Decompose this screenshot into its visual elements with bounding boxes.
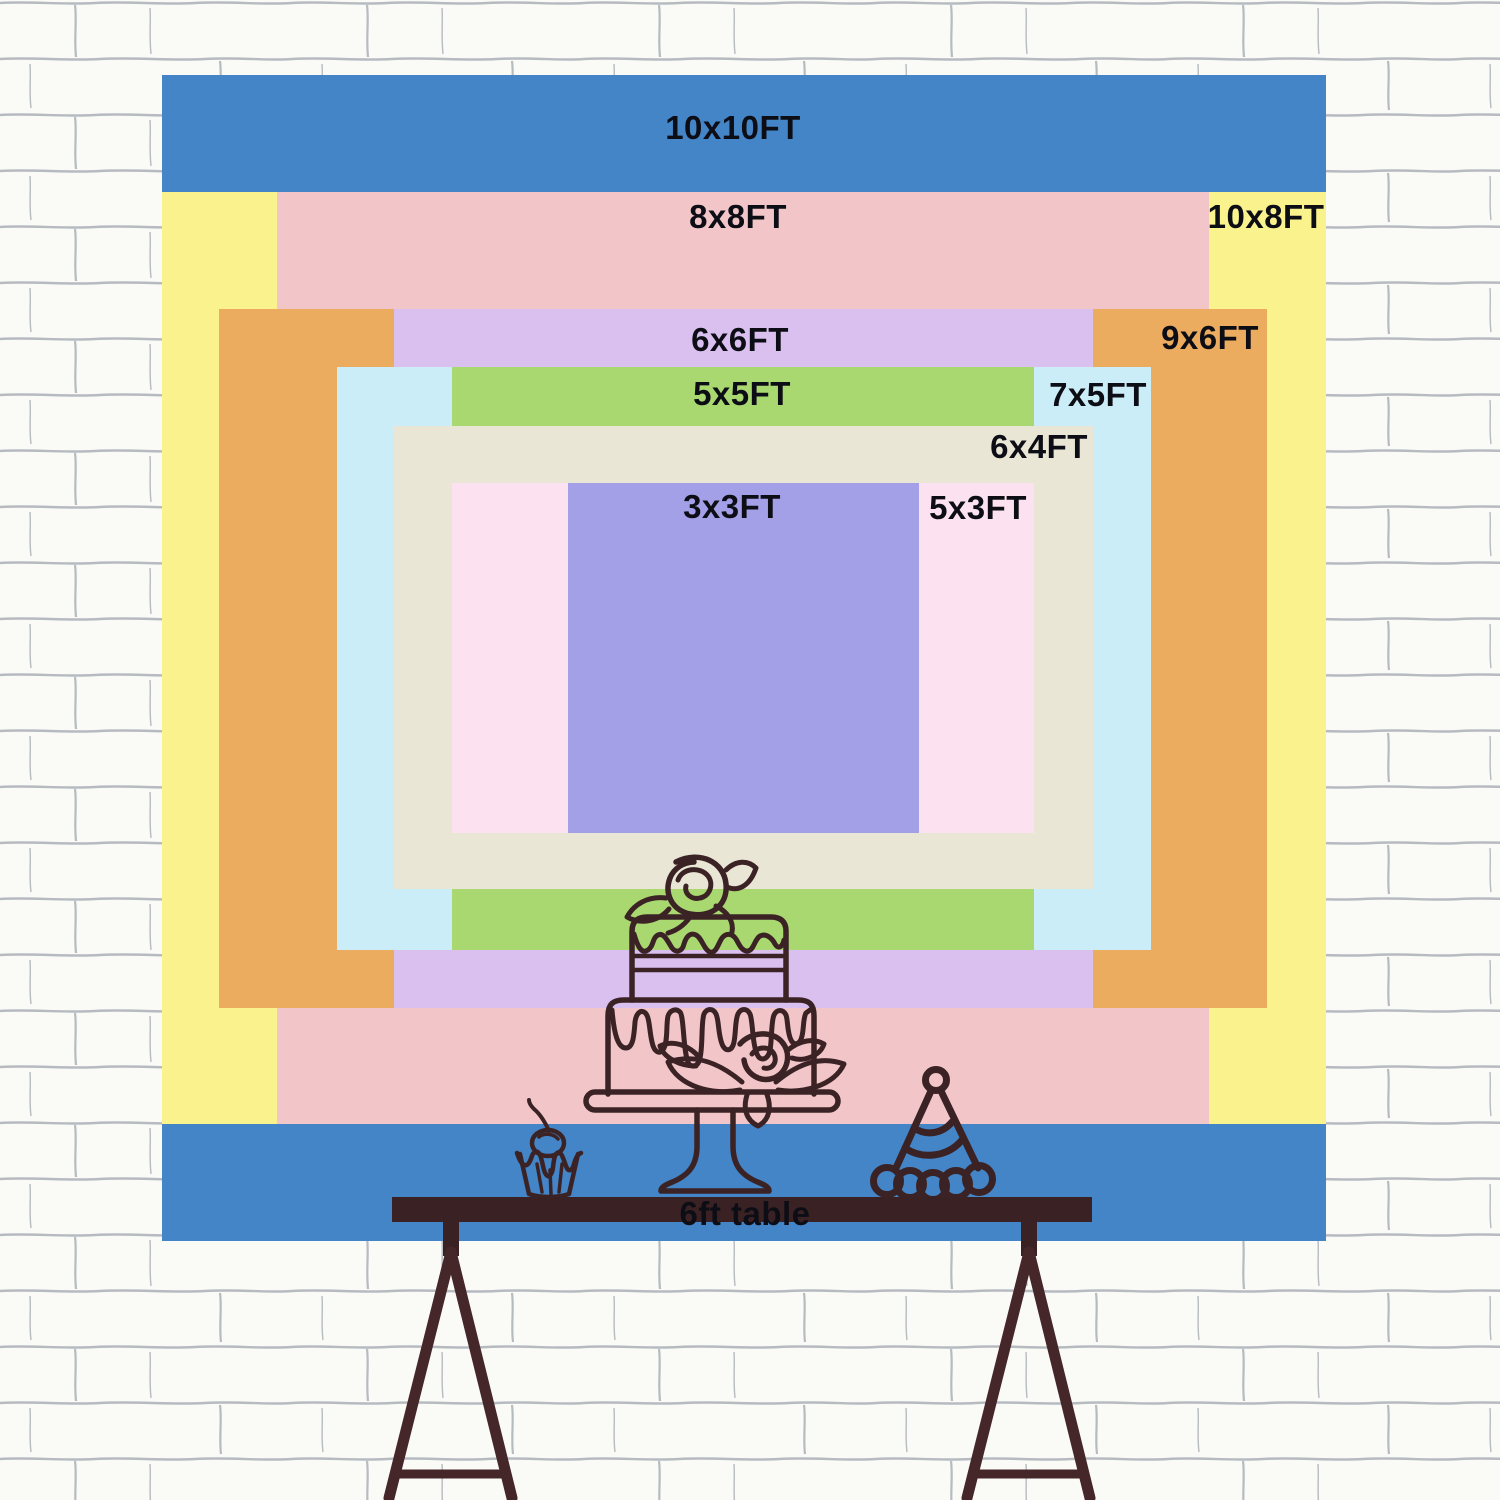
table-length-label: 6ft table [679, 1195, 810, 1233]
size-label-5x5ft: 5x5FT [693, 375, 791, 413]
size-label-6x4ft: 6x4FT [990, 428, 1088, 466]
size-label-3x3ft: 3x3FT [683, 488, 781, 526]
table-leg [389, 1252, 451, 1498]
size-label-8x8ft: 8x8FT [689, 198, 787, 236]
size-label-7x5ft: 7x5FT [1049, 376, 1147, 414]
cupcake-icon [517, 1100, 581, 1197]
size-label-9x6ft: 9x6FT [1161, 319, 1259, 357]
size-label-5x3ft: 5x3FT [929, 489, 1027, 527]
tiered-cake-icon [586, 857, 844, 1191]
backdrop-size-comparison-chart: 10x10FT 10x8FT 8x8FT 9x6FT 6x6FT 7x5FT 5… [0, 0, 1500, 1500]
size-label-6x6ft: 6x6FT [691, 321, 789, 359]
size-label-10x10ft: 10x10FT [665, 109, 801, 147]
party-hat-icon [874, 1070, 993, 1200]
size-label-10x8ft: 10x8FT [1208, 198, 1325, 236]
table [389, 1197, 1092, 1498]
